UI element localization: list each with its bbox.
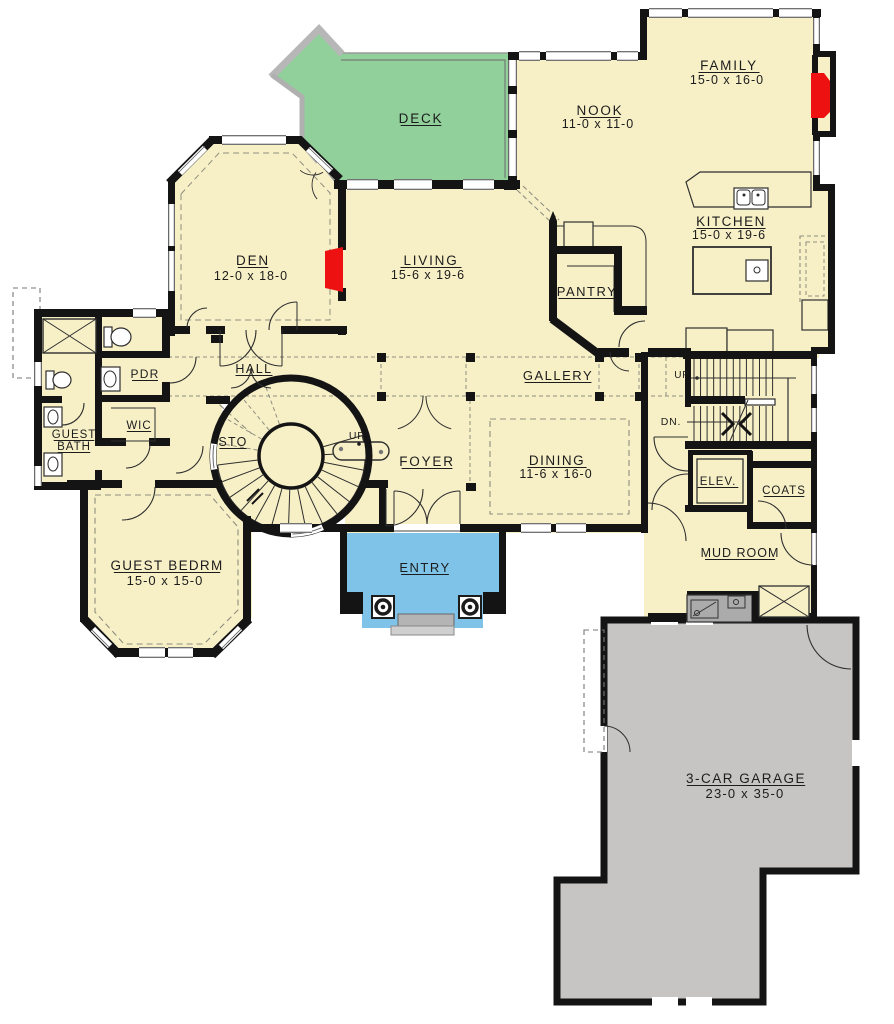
svg-text:GUEST: GUEST: [52, 429, 97, 441]
svg-text:UP: UP: [674, 370, 690, 381]
svg-text:11-0 x 11-0: 11-0 x 11-0: [562, 117, 634, 131]
svg-text:GUEST BEDRM: GUEST BEDRM: [110, 558, 223, 573]
svg-text:WIC: WIC: [126, 420, 151, 432]
svg-text:BATH: BATH: [57, 441, 91, 453]
svg-text:DINING: DINING: [529, 453, 585, 468]
svg-text:GALLERY: GALLERY: [523, 368, 593, 383]
svg-text:NOOK: NOOK: [577, 103, 624, 118]
svg-text:15-0 x 16-0: 15-0 x 16-0: [690, 73, 764, 87]
svg-text:ENTRY: ENTRY: [399, 560, 450, 575]
svg-text:KITCHEN: KITCHEN: [696, 214, 766, 229]
svg-text:STO: STO: [218, 435, 247, 449]
svg-text:3-CAR GARAGE: 3-CAR GARAGE: [686, 771, 806, 786]
svg-text:FAMILY: FAMILY: [700, 58, 758, 73]
svg-text:PDR: PDR: [131, 367, 160, 381]
svg-text:11-6 x 16-0: 11-6 x 16-0: [519, 467, 592, 481]
svg-text:COATS: COATS: [762, 485, 806, 497]
svg-text:FOYER: FOYER: [399, 454, 455, 469]
svg-text:PANTRY: PANTRY: [557, 284, 618, 299]
svg-text:DECK: DECK: [399, 111, 444, 126]
svg-text:15-6 x 19-6: 15-6 x 19-6: [391, 268, 465, 282]
svg-text:LIVING: LIVING: [403, 253, 458, 268]
svg-text:15-0 x 19-6: 15-0 x 19-6: [692, 228, 766, 242]
svg-text:ELEV.: ELEV.: [700, 476, 737, 488]
svg-text:UP: UP: [349, 430, 365, 442]
svg-text:MUD ROOM: MUD ROOM: [701, 546, 780, 560]
svg-text:HALL: HALL: [235, 362, 272, 376]
svg-text:DN.: DN.: [661, 416, 681, 428]
svg-text:12-0 x 18-0: 12-0 x 18-0: [214, 269, 288, 283]
svg-text:23-0 x 35-0: 23-0 x 35-0: [706, 786, 785, 801]
svg-text:DEN: DEN: [236, 253, 270, 268]
svg-text:15-0 x 15-0: 15-0 x 15-0: [127, 573, 204, 588]
